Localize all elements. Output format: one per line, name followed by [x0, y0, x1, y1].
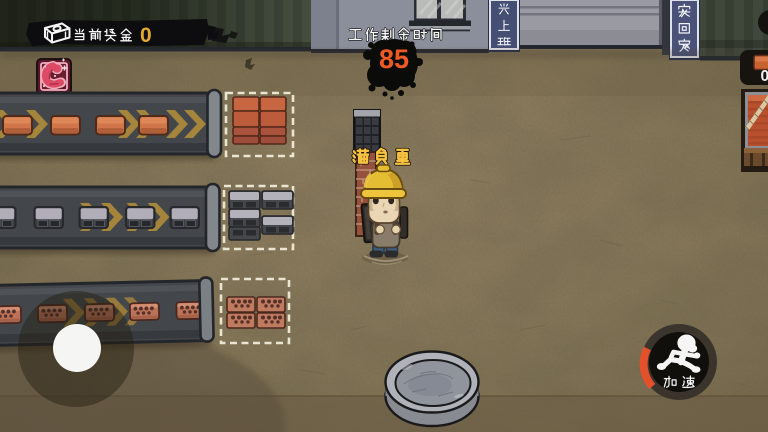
svg-text:85: 85: [379, 44, 409, 74]
svg-text:0: 0: [761, 68, 768, 85]
svg-text:0: 0: [140, 24, 152, 47]
